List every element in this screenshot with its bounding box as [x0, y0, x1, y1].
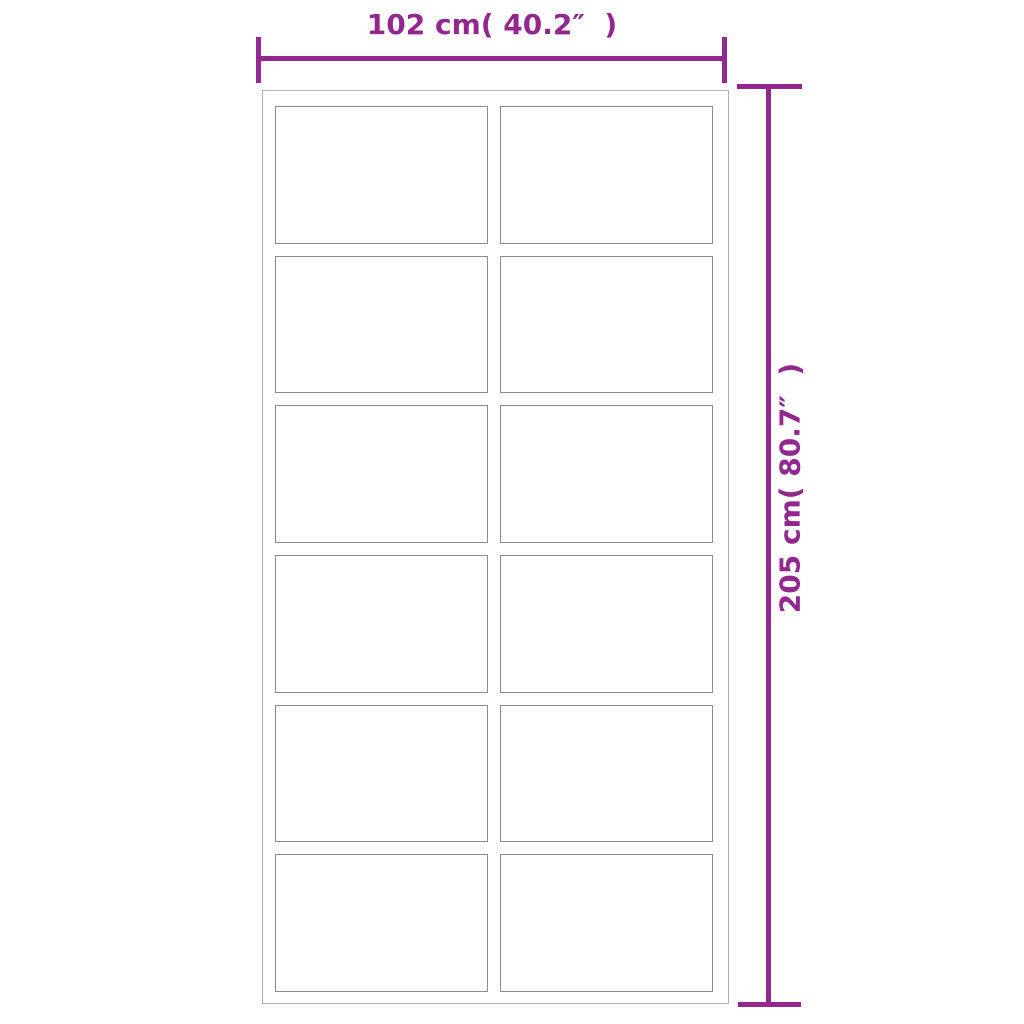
height-dimension-label: 205 cm( 80.7″ ): [776, 363, 807, 613]
panel-grid: [275, 106, 713, 992]
glass-panel: [275, 106, 488, 244]
glass-panel: [275, 705, 488, 843]
width-dimension-right-tick: [722, 37, 727, 83]
glass-panel: [500, 555, 713, 693]
glass-panel: [500, 106, 713, 244]
height-dimension-top-tick: [737, 84, 802, 89]
width-dimension-label: 102 cm( 40.2″ ): [259, 10, 725, 41]
glass-panel: [500, 854, 713, 992]
width-dimension-left-tick: [256, 37, 261, 83]
width-dimension-line: [259, 56, 725, 61]
dimension-diagram: 102 cm( 40.2″ ) 205 cm( 80.7″ ): [0, 0, 1024, 1024]
glass-panel: [275, 256, 488, 394]
glass-panel: [500, 705, 713, 843]
height-dimension-line: [766, 85, 771, 1007]
glass-panel: [275, 405, 488, 543]
glass-panel: [500, 405, 713, 543]
door-outline: [262, 90, 729, 1004]
glass-panel: [275, 555, 488, 693]
glass-panel: [500, 256, 713, 394]
glass-panel: [275, 854, 488, 992]
height-dimension-bottom-tick: [738, 1002, 801, 1007]
